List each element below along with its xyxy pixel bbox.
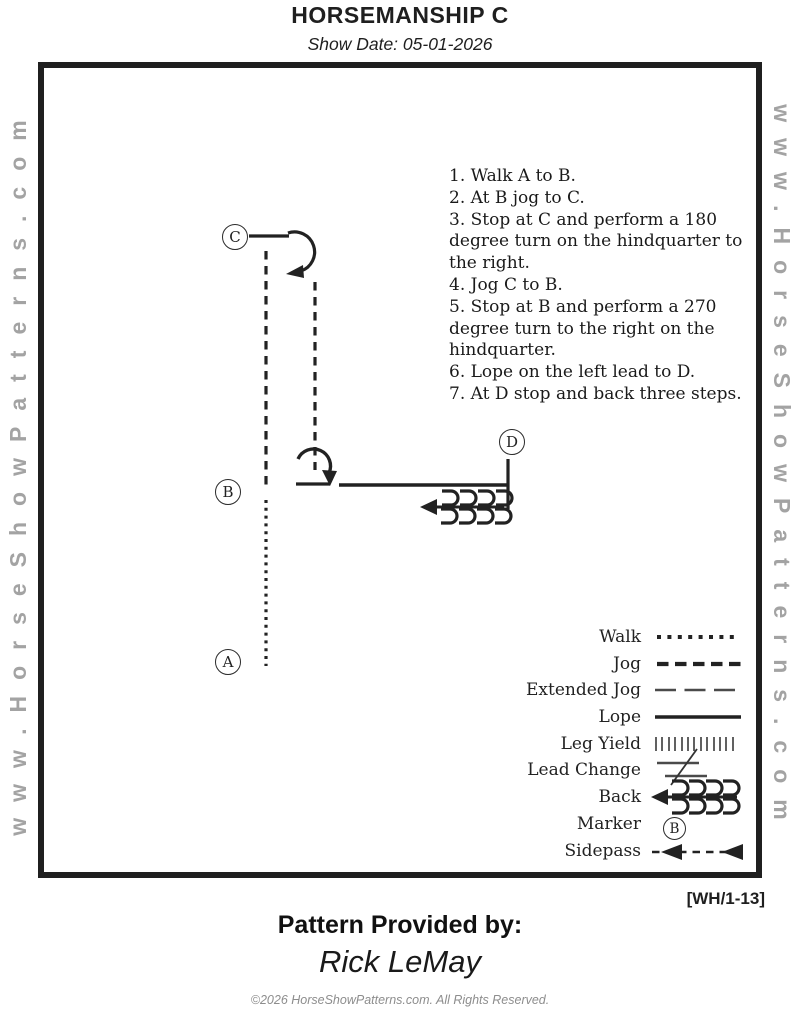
- legend-sidepass-icon: [652, 844, 743, 860]
- legend-label-walk: Walk: [599, 626, 641, 648]
- instruction-line: 2. At B jog to C.: [449, 188, 763, 210]
- legend-label-sidepass: Sidepass: [565, 840, 642, 862]
- pattern-code: [WH/1-13]: [687, 889, 765, 909]
- provided-by-label: Pattern Provided by:: [0, 911, 800, 940]
- instruction-line: 5. Stop at B and perform a 270 degree tu…: [449, 297, 763, 362]
- legend-label-back: Back: [599, 786, 641, 808]
- pattern-diagram: [0, 0, 800, 1016]
- marker-c: C: [222, 224, 248, 250]
- marker-b: B: [215, 479, 241, 505]
- legend-label-leg-yield: Leg Yield: [561, 733, 641, 755]
- instruction-line: 7. At D stop and back three steps.: [449, 384, 763, 406]
- marker-d: D: [499, 429, 525, 455]
- instruction-line: 3. Stop at C and perform a 180 degree tu…: [449, 210, 763, 275]
- instruction-line: 4. Jog C to B.: [449, 275, 763, 297]
- legend-label-marker: Marker: [577, 813, 641, 835]
- legend-label-lead-change: Lead Change: [527, 759, 641, 781]
- back-symbol-icon: [420, 491, 512, 523]
- copyright-text: ©2026 HorseShowPatterns.com. All Rights …: [0, 993, 800, 1007]
- instruction-line: 6. Lope on the left lead to D.: [449, 362, 763, 384]
- legend-label-jog: Jog: [613, 653, 641, 675]
- instruction-line: 1. Walk A to B.: [449, 166, 763, 188]
- marker-a: A: [215, 649, 241, 675]
- legend-leg-yield-icon: [656, 737, 733, 751]
- instructions-list: 1. Walk A to B. 2. At B jog to C. 3. Sto…: [449, 166, 763, 406]
- turn-180-arrow-icon: [286, 232, 315, 278]
- provider-name: Rick LeMay: [0, 944, 800, 980]
- legend-back-icon: [651, 781, 739, 813]
- legend-marker-circle: B: [663, 817, 686, 840]
- legend-label-lope: Lope: [599, 706, 641, 728]
- legend-label-extended-jog: Extended Jog: [526, 679, 641, 701]
